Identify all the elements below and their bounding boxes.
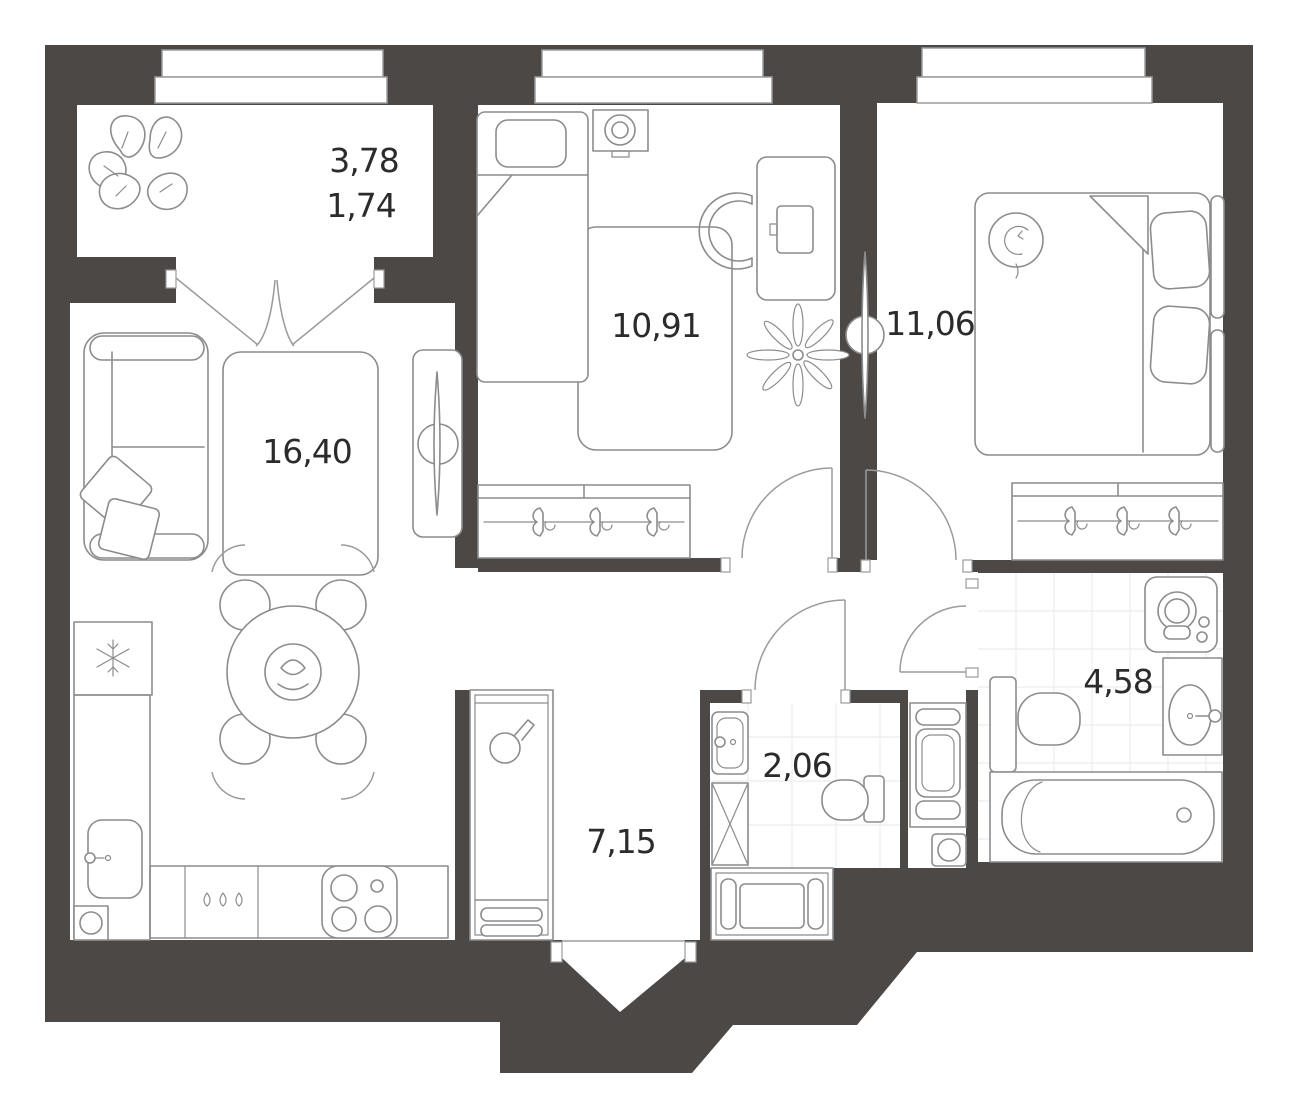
bedroom-master-window — [917, 48, 1152, 103]
area-label-bathroom: 4,58 — [1083, 662, 1152, 701]
nightstand — [593, 110, 648, 157]
wc-door-opening — [751, 690, 841, 703]
area-label-bedroom-master: 11,06 — [885, 304, 974, 343]
area-label-bedroom-small: 10,91 — [611, 306, 700, 345]
floor-plan: 3,78 1,74 16,40 10,91 11,06 7,15 2,06 4,… — [0, 0, 1300, 1120]
area-label-living: 16,40 — [262, 432, 351, 471]
door-jamb — [166, 270, 176, 288]
pillow — [1149, 305, 1210, 385]
pillow — [496, 120, 566, 167]
monitor-icon — [777, 206, 813, 253]
single-bed — [477, 112, 588, 382]
laundry-drawer — [916, 709, 960, 725]
sofa-cushion — [97, 497, 160, 560]
faucet-icon — [85, 853, 95, 863]
wardrobe-master-bedroom — [1012, 483, 1223, 560]
bathroom-sink — [1163, 658, 1222, 755]
area-label-loggia-total: 3,78 — [329, 141, 398, 180]
stove — [322, 866, 397, 938]
loggia-window — [155, 50, 387, 103]
refrigerator — [74, 622, 152, 695]
hall-cabinet — [470, 690, 553, 940]
bedroom-small-door-opening — [730, 558, 828, 572]
area-label-loggia-reduced: 1,74 — [326, 186, 395, 225]
bedroom-master-door-opening — [870, 560, 963, 572]
faucet-icon — [715, 737, 725, 747]
door-jamb — [374, 270, 384, 288]
loggia-door-opening — [176, 255, 374, 303]
wc-sink — [712, 712, 748, 774]
windows — [155, 48, 1152, 103]
bathroom-door-opening — [966, 588, 978, 668]
pillow — [1149, 210, 1210, 290]
sofa — [78, 333, 208, 561]
entry-bench — [711, 868, 833, 940]
floor-plan-page: 3,78 1,74 16,40 10,91 11,06 7,15 2,06 4,… — [0, 0, 1300, 1120]
bathtub — [990, 772, 1222, 862]
bedroom-small-window — [535, 50, 772, 103]
wardrobe-small-bedroom — [478, 485, 690, 558]
shower-box — [712, 783, 748, 865]
area-label-wc: 2,06 — [762, 746, 831, 785]
counter-corner-unit — [74, 906, 108, 940]
room-hallway-corridor — [553, 690, 700, 940]
faucet-icon — [1209, 710, 1221, 722]
kitchen-sink — [88, 820, 142, 898]
desk — [757, 157, 835, 300]
area-label-hallway: 7,15 — [586, 822, 655, 861]
tv-screen — [434, 372, 440, 515]
tv-console — [413, 350, 462, 537]
water-heater — [932, 834, 966, 866]
cabinet-drawer — [481, 925, 542, 936]
headboard — [1211, 330, 1224, 452]
headboard — [1211, 196, 1224, 318]
laundry-drawer — [916, 801, 960, 819]
cabinet-drawer — [481, 908, 542, 921]
washing-machine — [1145, 577, 1217, 652]
